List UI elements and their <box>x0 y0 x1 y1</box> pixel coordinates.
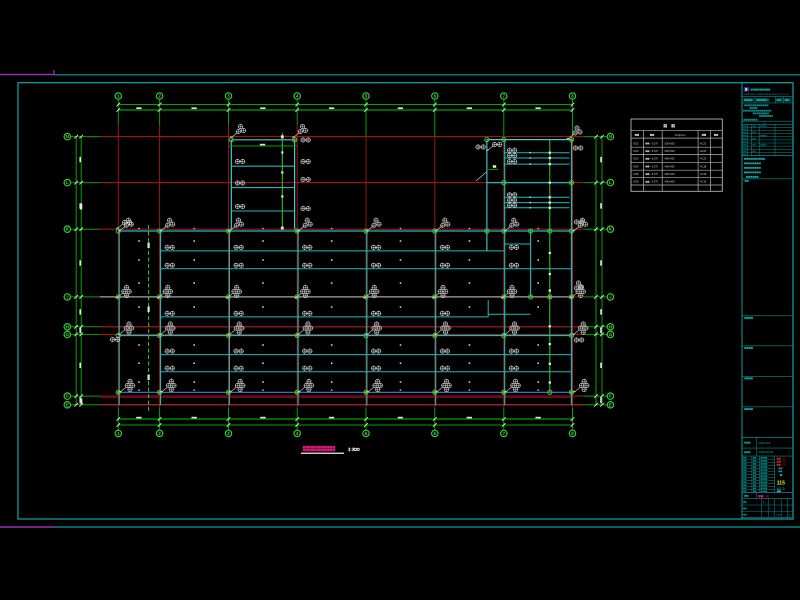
svg-text:4C18: 4C18 <box>700 172 707 176</box>
svg-text:~3.570: ~3.570 <box>651 158 659 161</box>
svg-text:N: N <box>66 134 69 139</box>
svg-text:400×400: 400×400 <box>665 180 676 184</box>
svg-text:500×500: 500×500 <box>665 141 676 145</box>
svg-text:b×h(mm): b×h(mm) <box>675 133 686 137</box>
svg-text:~3.570: ~3.570 <box>651 165 659 168</box>
svg-text:~3.570: ~3.570 <box>651 173 659 176</box>
svg-text:N: N <box>609 134 612 139</box>
svg-text:-05: -05 <box>765 494 769 498</box>
svg-text:4C22: 4C22 <box>700 141 707 145</box>
svg-text:L: L <box>66 180 69 185</box>
svg-text:G: G <box>66 332 70 337</box>
svg-text:400×400: 400×400 <box>665 172 676 176</box>
svg-text:4C16: 4C16 <box>700 180 707 184</box>
svg-text:2020.06.18: 2020.06.18 <box>758 450 773 454</box>
svg-text:~3.570: ~3.570 <box>651 142 659 145</box>
svg-text:KZ5: KZ5 <box>634 172 639 176</box>
svg-text:4C20: 4C20 <box>700 157 707 161</box>
svg-text:KZ3: KZ3 <box>634 157 639 161</box>
svg-text:4C18: 4C18 <box>700 164 707 168</box>
svg-text:115: 115 <box>777 481 785 487</box>
svg-text:KZ2: KZ2 <box>634 149 639 153</box>
svg-text:450×450: 450×450 <box>665 164 676 168</box>
svg-text:F: F <box>66 394 69 399</box>
svg-text:450×450: 450×450 <box>665 157 676 161</box>
svg-text:4C20: 4C20 <box>700 149 707 153</box>
svg-text:H: H <box>609 324 612 329</box>
svg-text:~3.570: ~3.570 <box>651 150 659 153</box>
svg-text:2020-115: 2020-115 <box>758 441 770 445</box>
svg-text:G: G <box>609 332 613 337</box>
svg-text:E: E <box>609 402 612 407</box>
svg-text:KZ1: KZ1 <box>634 141 639 145</box>
svg-text:1:100: 1:100 <box>776 514 782 516</box>
svg-text:500×500: 500×500 <box>665 149 676 153</box>
svg-text:L: L <box>609 180 612 185</box>
svg-text:E: E <box>66 402 69 407</box>
svg-text:F: F <box>609 394 612 399</box>
svg-text:KZ6: KZ6 <box>634 180 639 184</box>
svg-text:KZ4: KZ4 <box>634 164 639 168</box>
svg-text:XXX ARCHITECTURAL DESIGN INSTI: XXX ARCHITECTURAL DESIGN INSTITUTE CO.,L… <box>743 93 790 96</box>
svg-text:( 1 ): ( 1 ) <box>762 123 766 125</box>
svg-text:H: H <box>66 324 69 329</box>
svg-text:~3.570: ~3.570 <box>651 181 659 184</box>
svg-text:A2.3: A2.3 <box>777 487 785 491</box>
